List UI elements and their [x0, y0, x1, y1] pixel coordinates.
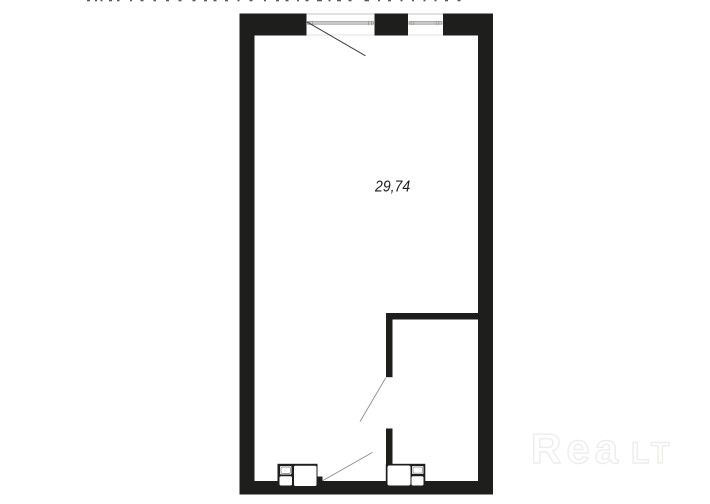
- svg-text:Rea: Rea: [531, 425, 623, 472]
- svg-text:29,74: 29,74: [374, 178, 410, 196]
- svg-text:LT: LT: [631, 437, 673, 470]
